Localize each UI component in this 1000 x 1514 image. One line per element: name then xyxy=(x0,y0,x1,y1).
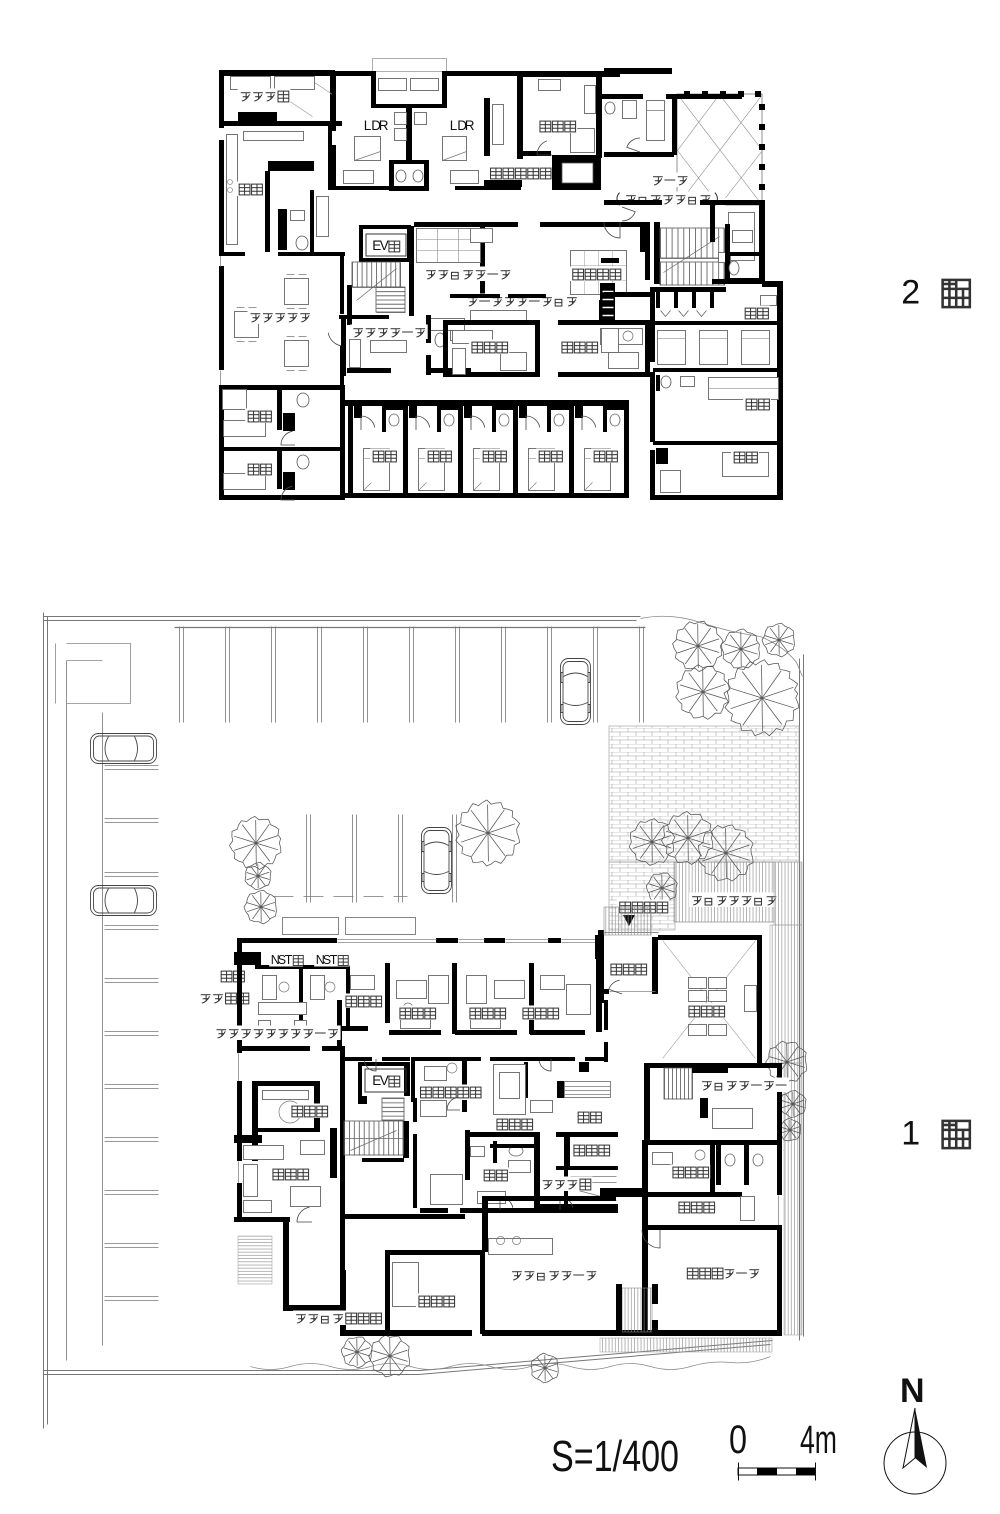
svg-text:N: N xyxy=(900,1372,925,1410)
svg-text:R: R xyxy=(465,118,475,133)
svg-text:T: T xyxy=(330,953,338,967)
svg-text:V: V xyxy=(380,238,389,253)
svg-text:R: R xyxy=(379,118,389,133)
svg-text:0: 0 xyxy=(729,1418,747,1462)
svg-text:T: T xyxy=(285,953,293,967)
svg-text:2: 2 xyxy=(901,274,920,312)
svg-text:V: V xyxy=(380,1073,389,1088)
svg-text:1: 1 xyxy=(901,1115,920,1153)
svg-text:S=1/400: S=1/400 xyxy=(551,1432,679,1481)
svg-text:4m: 4m xyxy=(800,1418,837,1462)
